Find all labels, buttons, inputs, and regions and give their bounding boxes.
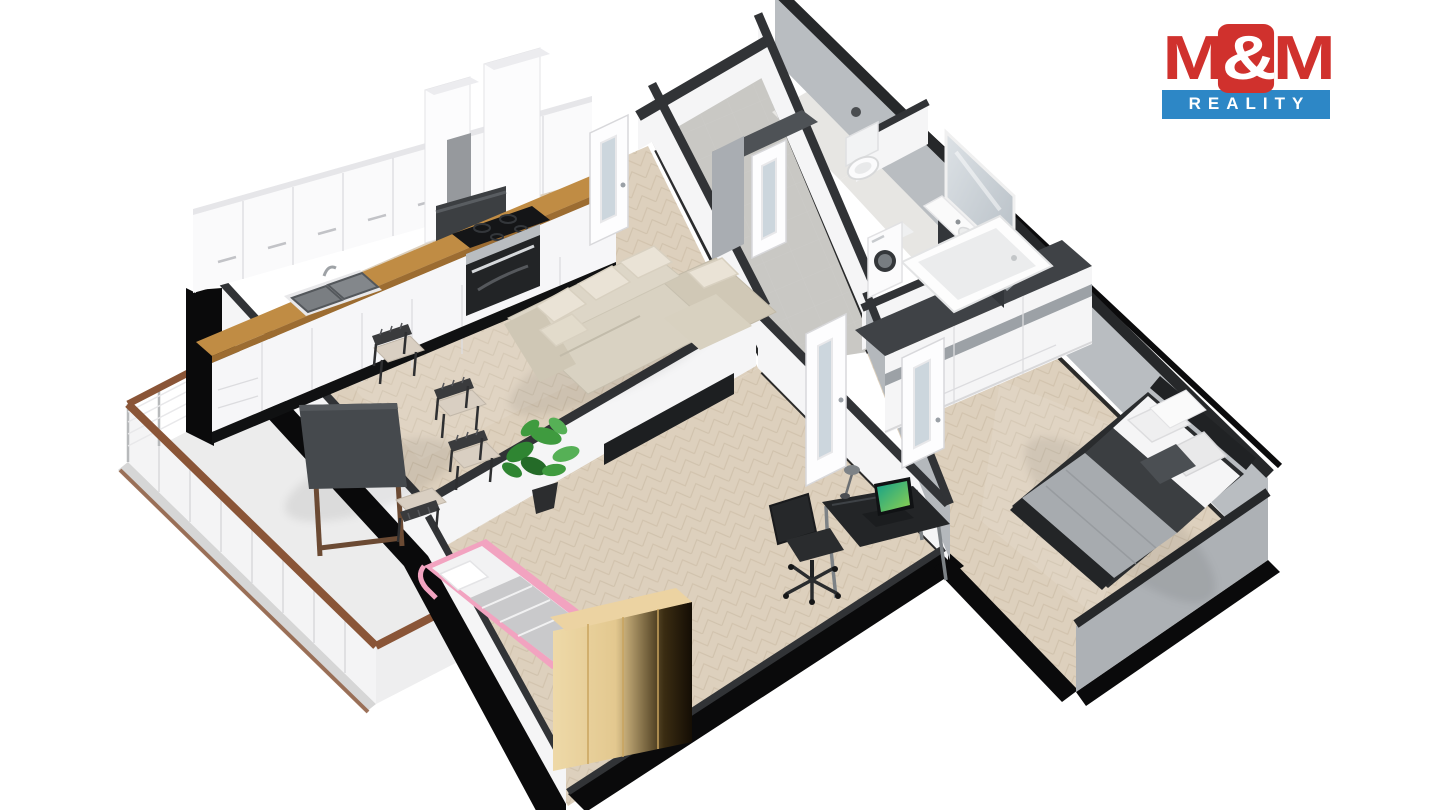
flush-button — [851, 107, 861, 117]
kitchen-left-end — [186, 288, 214, 446]
door-bedroom — [902, 338, 944, 468]
table-top — [299, 403, 407, 489]
tub-drain — [1011, 255, 1017, 261]
wooden-wardrobe — [550, 588, 692, 771]
floorplan-render: M&M REALITY — [0, 0, 1440, 810]
faucet — [324, 267, 336, 276]
logo-reality-bar: REALITY — [1162, 90, 1330, 119]
door-handle — [839, 398, 844, 403]
wc-corner-column — [712, 136, 744, 260]
door-handle — [621, 183, 626, 188]
door-wc — [752, 140, 786, 258]
door-kids-room — [806, 314, 846, 486]
floorplan-svg — [0, 0, 1440, 810]
logo-m-left: M — [1162, 24, 1219, 93]
mm-reality-logo: M&M REALITY — [1162, 30, 1330, 119]
logo-m-right: M — [1273, 24, 1330, 93]
washer-door-glass — [878, 254, 892, 268]
logo-ampersand: & — [1218, 24, 1274, 93]
door-living-hall — [590, 115, 628, 245]
vanity-faucet — [956, 220, 961, 225]
door-handle — [936, 418, 941, 423]
logo-mm-text: M&M — [1144, 30, 1349, 87]
